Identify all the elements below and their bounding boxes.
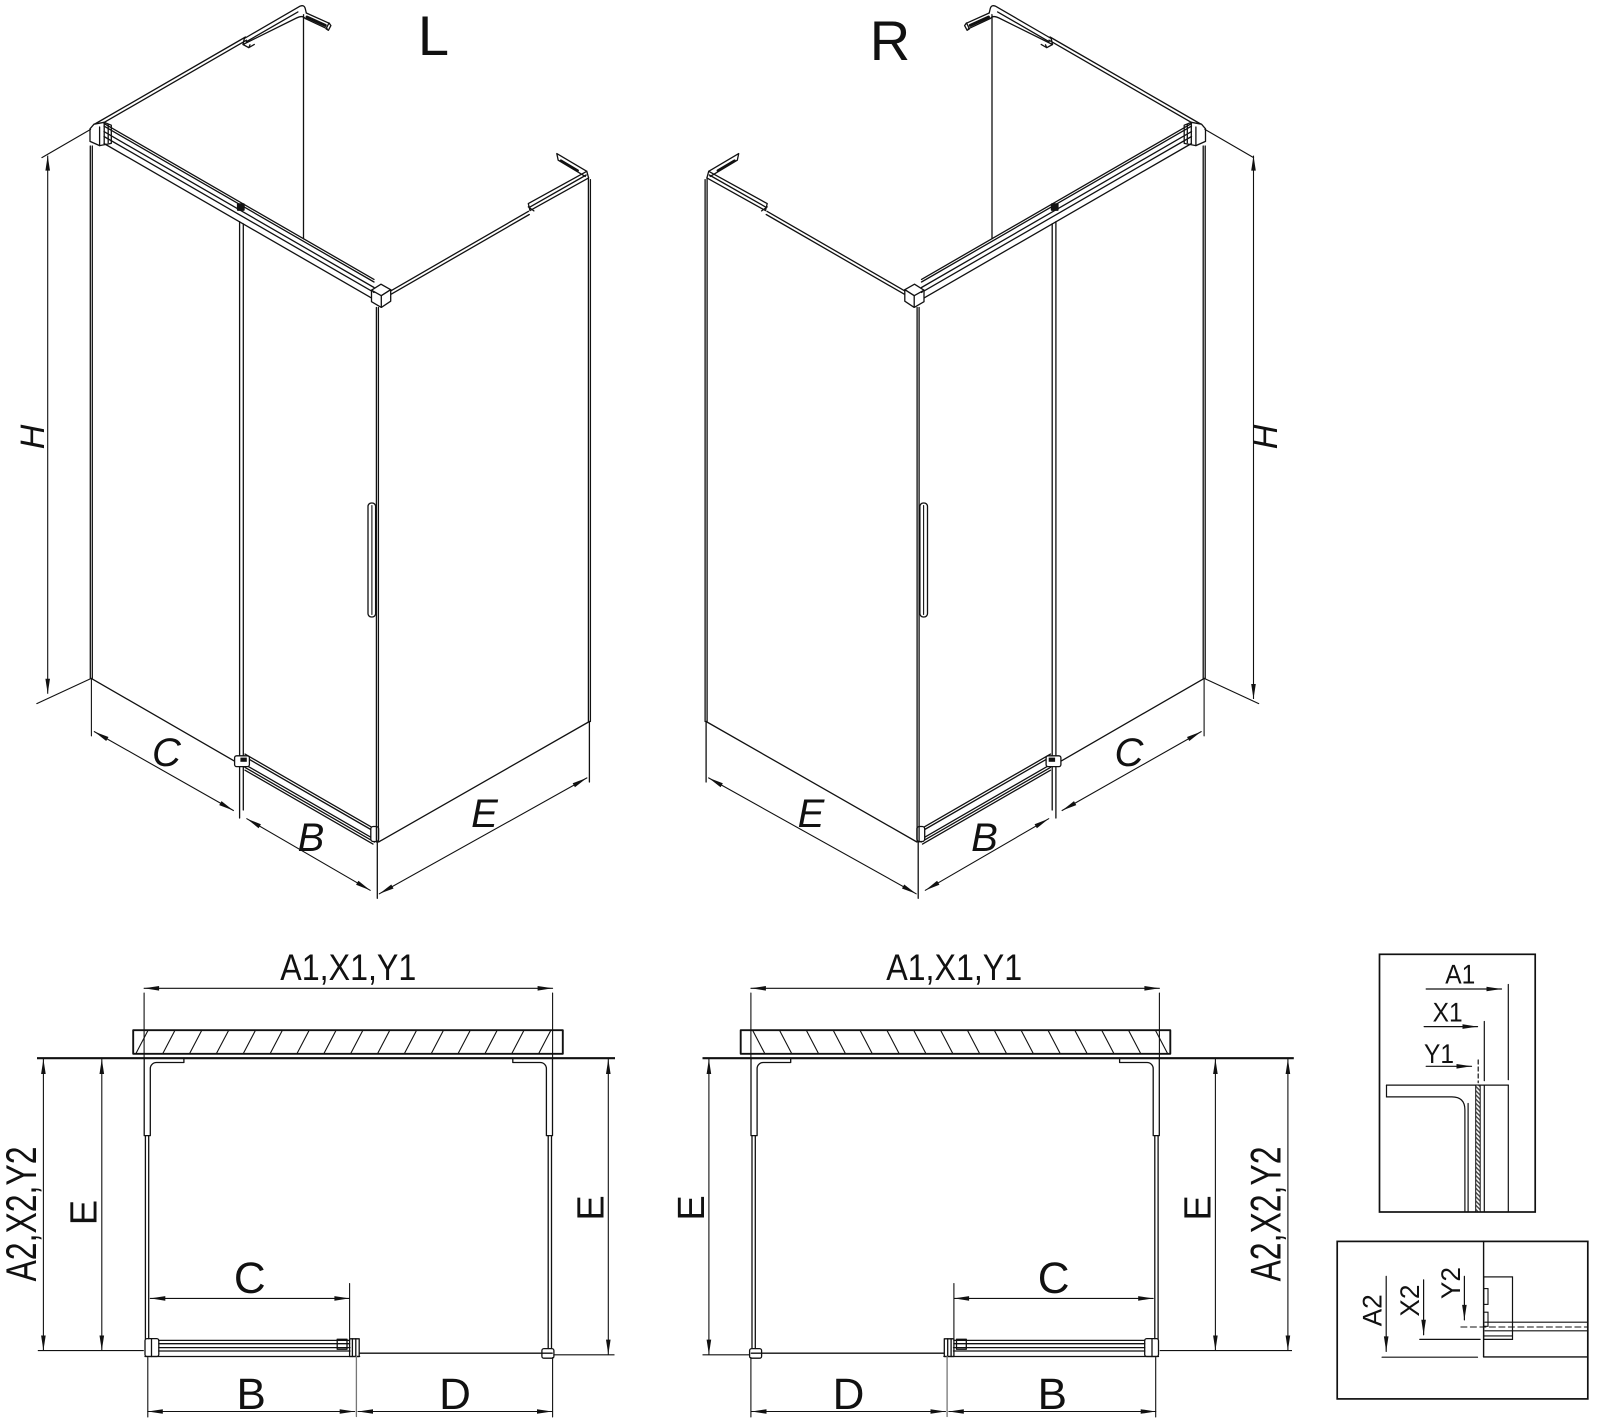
svg-text:R: R	[870, 9, 910, 72]
svg-text:C: C	[1038, 1254, 1070, 1303]
svg-text:E: E	[798, 792, 826, 836]
svg-text:A2,X2,Y2: A2,X2,Y2	[1243, 1147, 1291, 1282]
svg-text:B: B	[971, 816, 998, 860]
svg-text:L: L	[418, 4, 449, 67]
svg-text:E: E	[64, 1200, 106, 1225]
svg-text:C: C	[234, 1254, 266, 1303]
svg-text:B: B	[298, 816, 325, 860]
svg-text:H: H	[14, 424, 52, 449]
svg-text:E: E	[671, 1195, 713, 1220]
svg-text:E: E	[1177, 1195, 1219, 1220]
svg-text:E: E	[471, 792, 499, 836]
svg-text:A2,X2,Y2: A2,X2,Y2	[0, 1147, 46, 1282]
svg-text:Y1: Y1	[1424, 1039, 1454, 1069]
svg-text:A1,X1,Y1: A1,X1,Y1	[280, 947, 416, 988]
svg-text:E: E	[570, 1195, 612, 1220]
svg-text:X2: X2	[1395, 1285, 1425, 1317]
svg-text:A2: A2	[1357, 1294, 1387, 1326]
svg-text:D: D	[833, 1370, 865, 1419]
svg-text:H: H	[1247, 424, 1285, 449]
svg-text:A1: A1	[1445, 960, 1475, 990]
svg-text:C: C	[1115, 731, 1145, 775]
svg-text:C: C	[152, 731, 182, 775]
svg-text:X1: X1	[1433, 997, 1463, 1027]
svg-text:Y2: Y2	[1436, 1267, 1466, 1299]
svg-text:D: D	[439, 1370, 471, 1419]
svg-text:B: B	[1038, 1370, 1067, 1419]
svg-text:B: B	[237, 1370, 266, 1419]
svg-text:A1,X1,Y1: A1,X1,Y1	[886, 947, 1022, 988]
